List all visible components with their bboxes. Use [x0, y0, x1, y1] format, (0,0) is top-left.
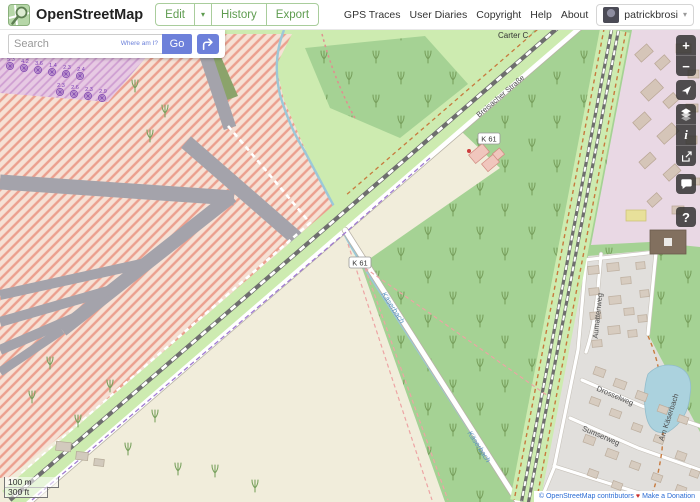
- top-links: GPS Traces User Diaries Copyright Help A…: [344, 9, 588, 21]
- svg-text:K 61: K 61: [352, 259, 367, 268]
- locate-button[interactable]: [676, 80, 696, 100]
- svg-text:2.6: 2.6: [71, 85, 79, 91]
- chevron-down-icon: ▾: [201, 10, 205, 19]
- svg-text:K 61: K 61: [481, 135, 496, 144]
- add-note-button[interactable]: [676, 174, 696, 194]
- attribution: © OpenStreetMap contributors♥Make a Dona…: [534, 491, 700, 502]
- osm-logo[interactable]: [8, 4, 30, 26]
- go-button[interactable]: Go: [162, 34, 192, 54]
- svg-text:3.6: 3.6: [35, 61, 43, 67]
- openstreetmap-app: 5.34.23.61.42.32.42.32.62.32.9 Carter C …: [0, 0, 700, 502]
- map-canvas[interactable]: 5.34.23.61.42.32.42.32.62.32.9 Carter C …: [0, 0, 700, 502]
- where-am-i-link[interactable]: Where am I?: [121, 40, 158, 47]
- map-key-button[interactable]: i: [676, 124, 696, 145]
- export-button[interactable]: Export: [267, 4, 318, 25]
- user-diaries-link[interactable]: User Diaries: [410, 9, 468, 21]
- zoom-out-button[interactable]: −: [676, 55, 696, 76]
- zoom-in-button[interactable]: +: [676, 35, 696, 55]
- scale-imperial: 300 ft: [4, 487, 48, 498]
- share-button[interactable]: [676, 145, 696, 166]
- copyright-link[interactable]: Copyright: [476, 9, 521, 21]
- svg-text:2.3: 2.3: [85, 87, 93, 93]
- search-panel: Where am I? Go: [0, 30, 225, 58]
- header: OpenStreetMap Edit ▾ History Export GPS …: [0, 0, 700, 30]
- svg-text:2.3: 2.3: [57, 83, 65, 89]
- heart-icon: ♥: [634, 493, 642, 500]
- yellow-building: [626, 210, 646, 221]
- road-badge-k61-north: K 61: [478, 133, 500, 144]
- share-icon: [680, 150, 693, 163]
- directions-button[interactable]: [197, 34, 219, 54]
- poi-icon: [664, 238, 672, 246]
- comment-icon: [680, 178, 693, 191]
- svg-text:1.4: 1.4: [49, 63, 57, 69]
- avatar: [603, 7, 619, 23]
- svg-text:2.3: 2.3: [63, 65, 71, 71]
- help-link[interactable]: Help: [530, 9, 552, 21]
- edit-button[interactable]: Edit: [156, 4, 194, 25]
- place-label: Carter C: [498, 31, 528, 40]
- directions-arrow-icon: [201, 37, 215, 51]
- layers-icon: [679, 107, 693, 121]
- user-menu[interactable]: patrickbrosi ▾: [596, 4, 694, 26]
- nav-button-group: Edit ▾ History Export: [155, 3, 319, 26]
- osm-contributors-link[interactable]: © OpenStreetMap contributors: [539, 493, 634, 500]
- donate-link[interactable]: Make a Donation: [642, 493, 695, 500]
- gps-traces-link[interactable]: GPS Traces: [344, 9, 401, 21]
- layers-button[interactable]: [676, 104, 696, 124]
- about-link[interactable]: About: [561, 9, 588, 21]
- scale-control: 100 m 300 ft: [4, 477, 59, 498]
- user-name: patrickbrosi: [624, 9, 678, 21]
- edit-dropdown-caret[interactable]: ▾: [194, 4, 211, 25]
- svg-text:2.4: 2.4: [77, 67, 85, 73]
- map-controls: + − i: [676, 35, 696, 227]
- site-title[interactable]: OpenStreetMap: [36, 7, 143, 23]
- svg-text:2.9: 2.9: [99, 89, 107, 95]
- locate-arrow-icon: [680, 84, 693, 97]
- road-badge-k61-south: K 61: [349, 257, 371, 268]
- svg-text:4.2: 4.2: [21, 59, 29, 65]
- chevron-down-icon: ▾: [683, 10, 687, 19]
- history-button[interactable]: History: [212, 4, 266, 25]
- query-features-button[interactable]: ?: [676, 207, 696, 227]
